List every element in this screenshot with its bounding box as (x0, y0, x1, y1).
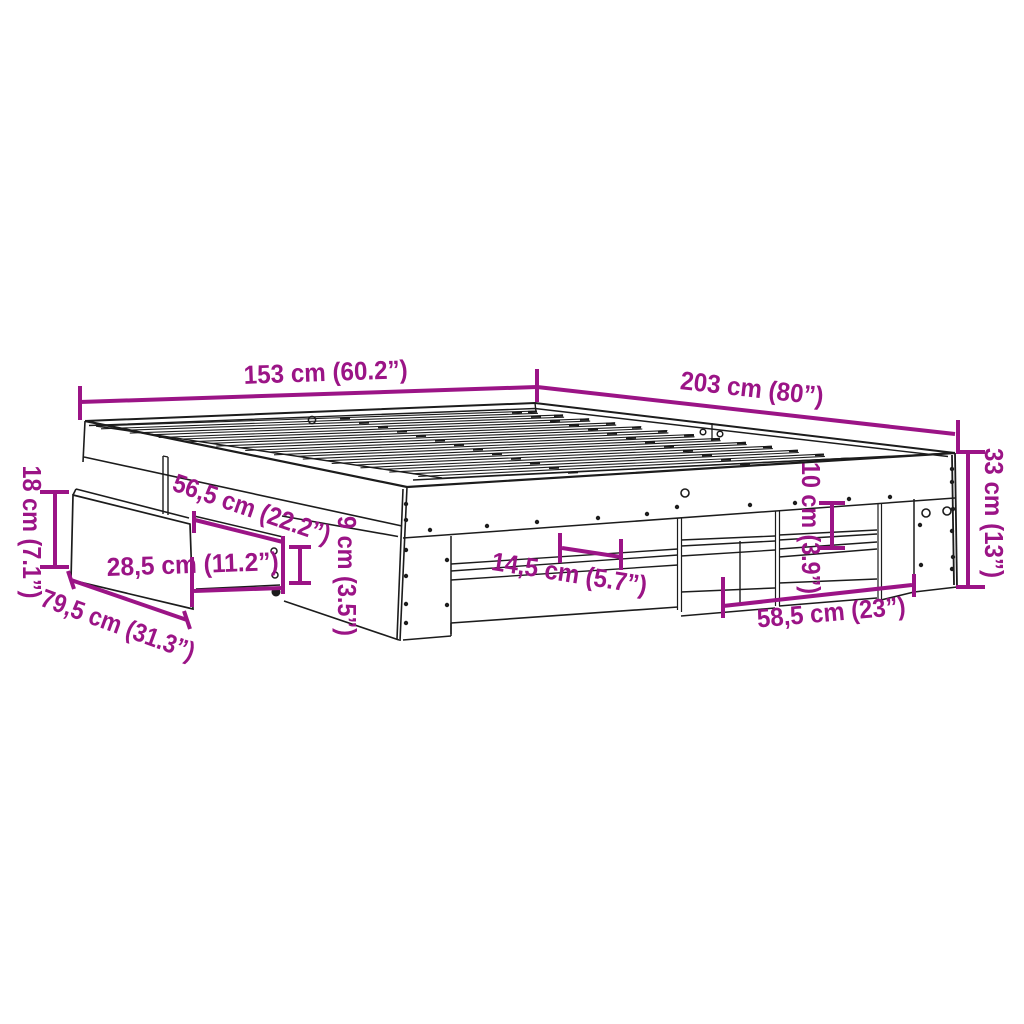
svg-text:18 cm (7.1”): 18 cm (7.1”) (17, 466, 47, 599)
svg-text:9 cm (3.5”): 9 cm (3.5”) (332, 516, 362, 636)
svg-text:10 cm (3.9”): 10 cm (3.9”) (796, 462, 826, 594)
svg-text:33 cm (13”): 33 cm (13”) (979, 448, 1009, 578)
svg-text:153 cm (60.2”): 153 cm (60.2”) (243, 354, 408, 390)
svg-text:28,5 cm (11.2”): 28,5 cm (11.2”) (106, 546, 279, 582)
